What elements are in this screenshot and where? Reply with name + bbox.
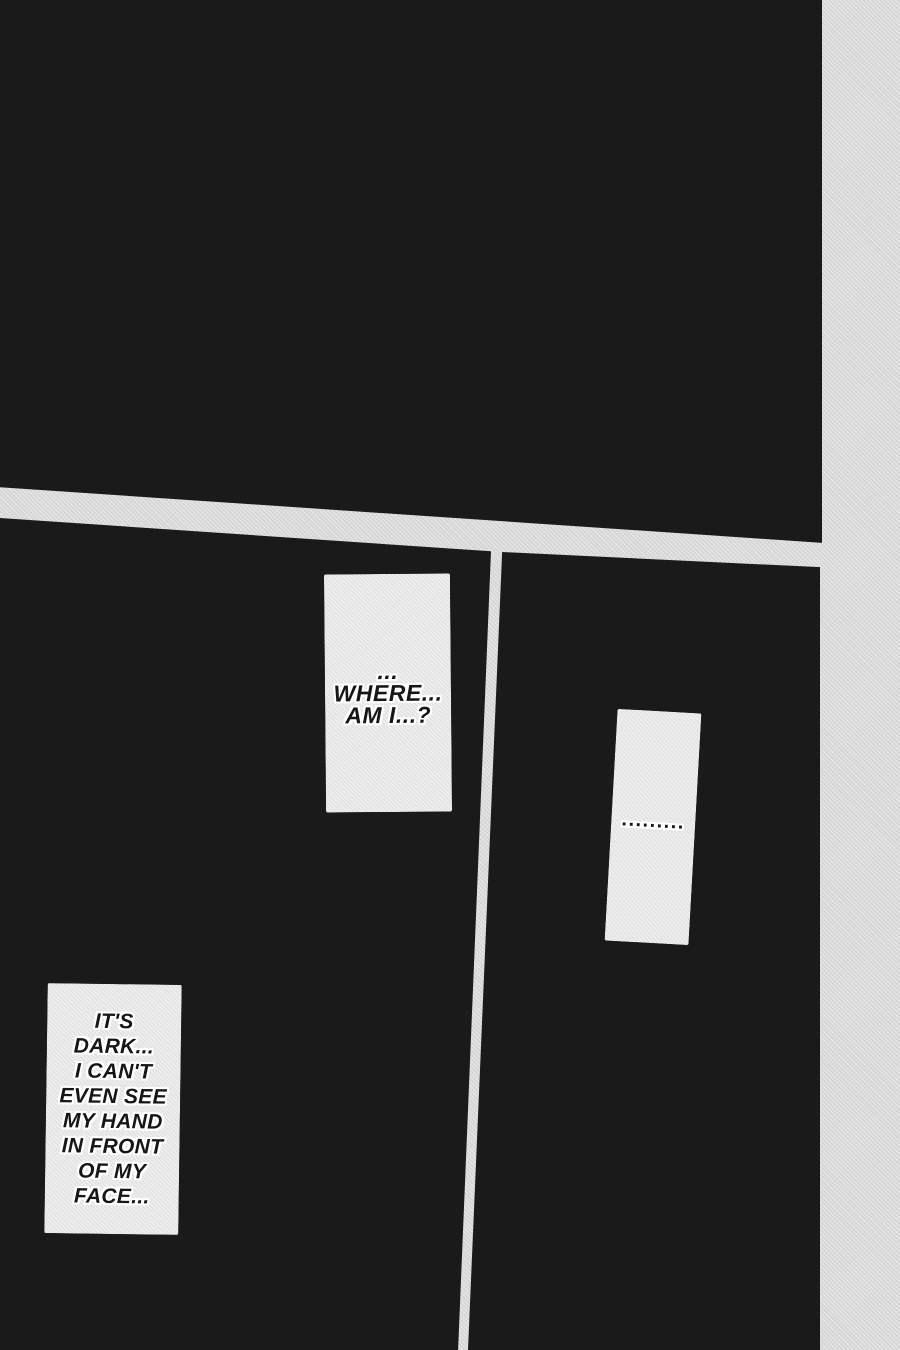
caption-box-silence: ......... bbox=[605, 709, 702, 945]
caption-box-where-am-i: ... WHERE... AM I...? bbox=[324, 573, 452, 812]
caption-line: FACE... bbox=[58, 1183, 166, 1209]
panel-top bbox=[0, 0, 822, 545]
ellipsis-text: ......... bbox=[621, 808, 686, 835]
caption-text-where: ... WHERE... AM I...? bbox=[333, 660, 442, 727]
caption-line: DARK... bbox=[60, 1033, 168, 1059]
panel-bottom-right bbox=[468, 552, 820, 1350]
caption-line: I CAN'T bbox=[60, 1058, 168, 1084]
manga-page: ... WHERE... AM I...? ......... IT'S DAR… bbox=[0, 0, 900, 1350]
caption-line: IT'S bbox=[60, 1008, 168, 1034]
caption-line: MY HAND bbox=[59, 1108, 167, 1134]
caption-box-its-dark: IT'S DARK... I CAN'T EVEN SEE MY HAND IN… bbox=[44, 983, 181, 1235]
caption-line: IN FRONT bbox=[59, 1133, 167, 1159]
caption-text-dark: IT'S DARK... I CAN'T EVEN SEE MY HAND IN… bbox=[58, 1008, 168, 1209]
caption-line: OF MY bbox=[58, 1158, 166, 1184]
caption-line: AM I...? bbox=[334, 704, 443, 727]
caption-line: EVEN SEE bbox=[59, 1083, 167, 1109]
